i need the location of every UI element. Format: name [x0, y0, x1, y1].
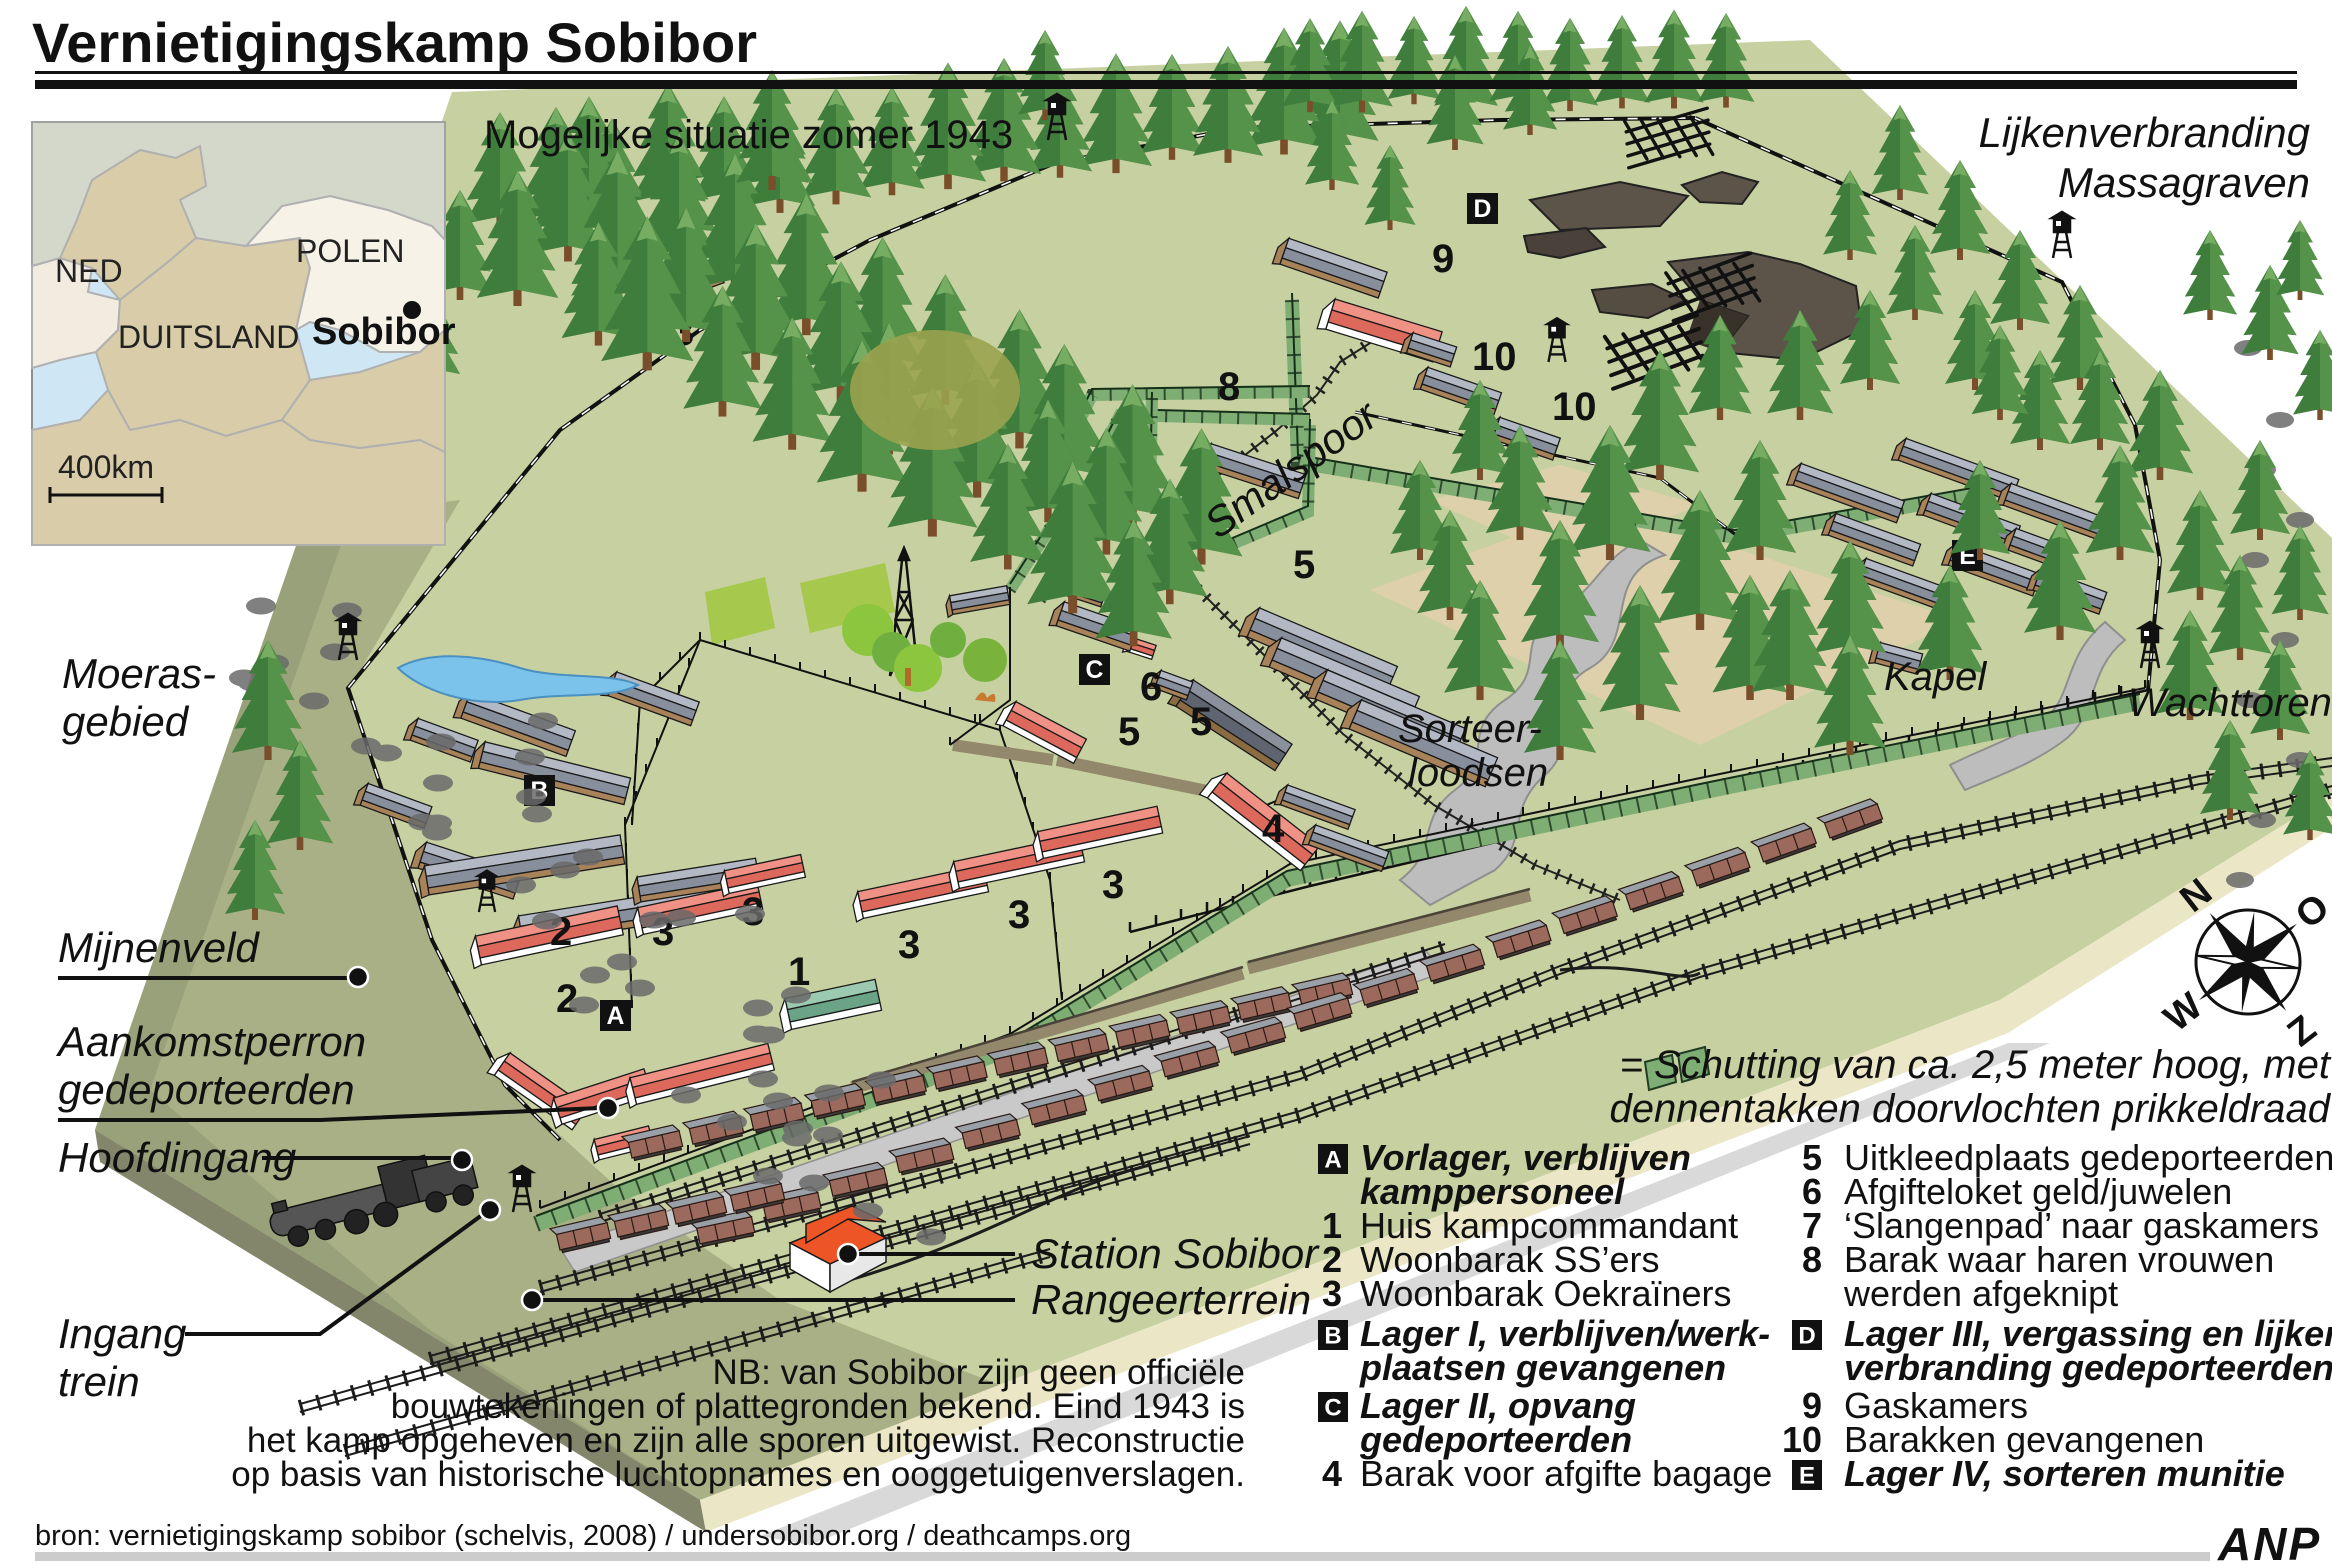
- svg-text:4: 4: [1322, 1453, 1342, 1494]
- svg-text:Mijnenveld: Mijnenveld: [58, 924, 260, 971]
- svg-text:5: 5: [1293, 543, 1315, 587]
- svg-text:10: 10: [1782, 1419, 1822, 1460]
- svg-text:plaatsen gevangenen: plaatsen gevangenen: [1359, 1347, 1726, 1388]
- svg-text:op basis van historische lucht: op basis van historische luchtopnames en…: [231, 1455, 1245, 1494]
- svg-text:Sorteer-: Sorteer-: [1398, 707, 1542, 751]
- svg-text:trein: trein: [58, 1358, 140, 1405]
- svg-text:D: D: [1474, 196, 1492, 223]
- svg-text:Wachttoren: Wachttoren: [2128, 681, 2332, 725]
- svg-text:Moeras-: Moeras-: [62, 650, 216, 697]
- svg-text:verbranding gedeporteerden: verbranding gedeporteerden: [1844, 1347, 2332, 1388]
- svg-text:loodsen: loodsen: [1408, 751, 1548, 795]
- svg-text:Vernietigingskamp Sobibor: Vernietigingskamp Sobibor: [32, 11, 757, 74]
- svg-text:3: 3: [1102, 863, 1124, 907]
- svg-text:400km: 400km: [58, 449, 154, 485]
- svg-text:gedeporteerden: gedeporteerden: [58, 1066, 355, 1113]
- svg-text:10: 10: [1552, 385, 1597, 429]
- svg-text:werden afgeknipt: werden afgeknipt: [1843, 1273, 2118, 1314]
- svg-text:Woonbarak Oekraïners: Woonbarak Oekraïners: [1360, 1273, 1732, 1314]
- svg-text:C: C: [1324, 1394, 1341, 1421]
- svg-text:Lijkenverbranding: Lijkenverbranding: [1978, 109, 2310, 156]
- svg-text:ANP: ANP: [2217, 1518, 2321, 1564]
- svg-text:3: 3: [1322, 1273, 1342, 1314]
- svg-text:POLEN: POLEN: [296, 233, 404, 269]
- svg-text:10: 10: [1472, 335, 1517, 379]
- svg-text:3: 3: [898, 923, 920, 967]
- svg-text:9: 9: [1432, 237, 1454, 281]
- svg-text:Sobibor: Sobibor: [312, 311, 456, 353]
- svg-text:Massagraven: Massagraven: [2058, 159, 2310, 206]
- svg-text:Kapel: Kapel: [1884, 655, 1987, 699]
- svg-text:Hoofdingang: Hoofdingang: [58, 1134, 296, 1181]
- svg-text:Station Sobibor: Station Sobibor: [1031, 1230, 1320, 1277]
- svg-text:= Schutting van ca. 2,5 meter: = Schutting van ca. 2,5 meter hoog, met: [1620, 1043, 2332, 1087]
- svg-text:3: 3: [1008, 893, 1030, 937]
- svg-text:Ingang: Ingang: [58, 1310, 186, 1357]
- svg-text:E: E: [1799, 1462, 1815, 1489]
- svg-text:A: A: [1324, 1146, 1341, 1173]
- svg-text:8: 8: [1802, 1239, 1822, 1280]
- svg-text:C: C: [1086, 657, 1104, 684]
- svg-text:dennentakken doorvlochten prik: dennentakken doorvlochten prikkeldraad: [1610, 1087, 2332, 1131]
- svg-text:Barak voor afgifte bagage: Barak voor afgifte bagage: [1360, 1453, 1772, 1494]
- svg-text:8: 8: [1218, 365, 1240, 409]
- svg-text:4: 4: [1262, 807, 1285, 851]
- svg-text:5: 5: [1190, 700, 1212, 744]
- svg-text:NED: NED: [55, 253, 123, 289]
- svg-text:D: D: [1798, 1322, 1815, 1349]
- svg-text:Lager IV, sorteren munitie: Lager IV, sorteren munitie: [1844, 1453, 2285, 1494]
- svg-text:Rangeerterrein: Rangeerterrein: [1031, 1276, 1311, 1323]
- svg-text:B: B: [1324, 1322, 1341, 1349]
- svg-text:gebied: gebied: [62, 698, 190, 745]
- svg-text:bron: vernietigingskamp sobibo: bron: vernietigingskamp sobibor (schelvi…: [35, 1520, 1131, 1552]
- svg-text:Aankomstperron: Aankomstperron: [55, 1018, 366, 1065]
- svg-text:6: 6: [1140, 665, 1162, 709]
- svg-text:A: A: [607, 1003, 625, 1030]
- svg-text:5: 5: [1118, 710, 1140, 754]
- svg-text:DUITSLAND: DUITSLAND: [118, 319, 299, 355]
- svg-text:Mogelijke situatie zomer 1943: Mogelijke situatie zomer 1943: [484, 113, 1013, 157]
